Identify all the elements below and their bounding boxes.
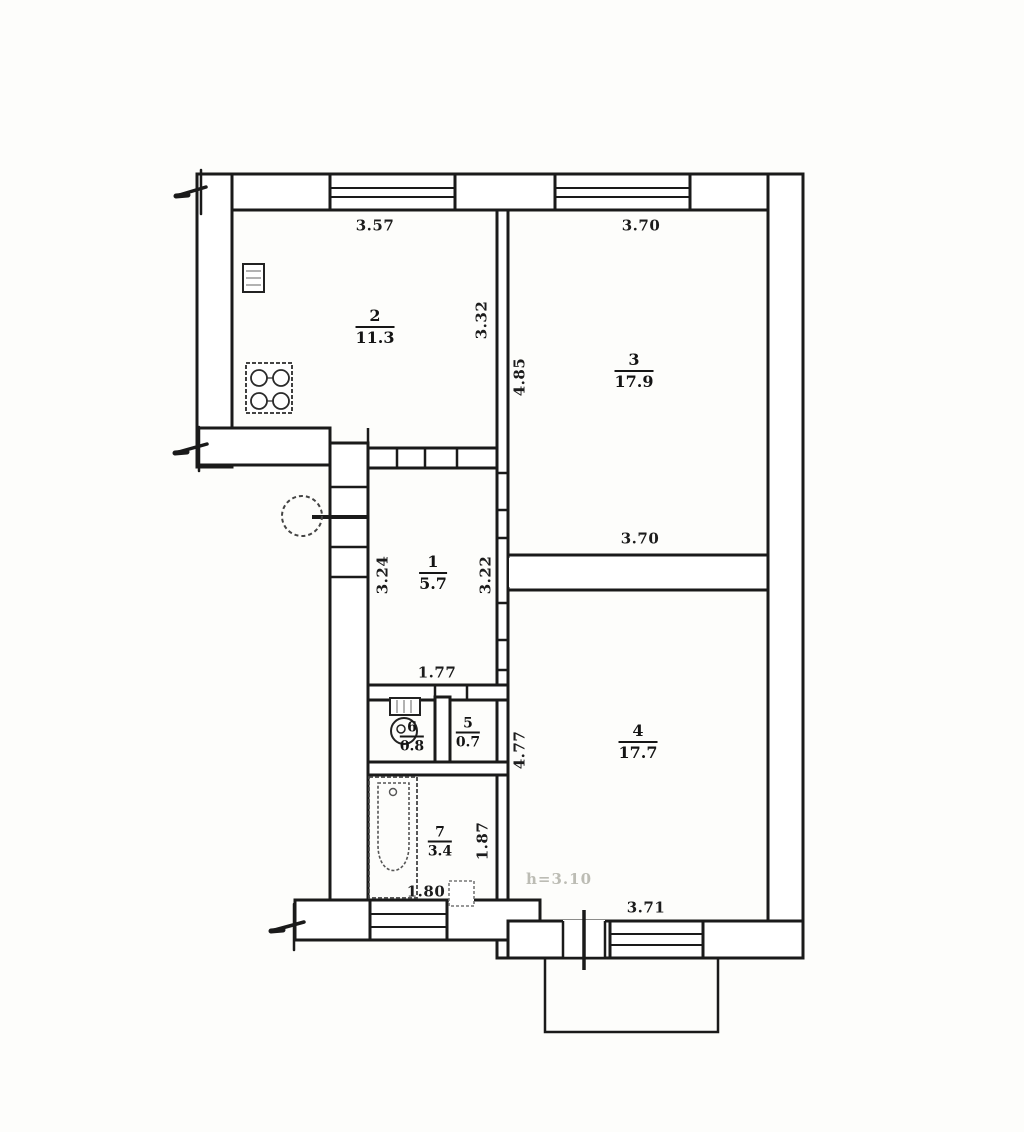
room-7-label: 7 3.4: [428, 826, 452, 859]
room-3-label: 3 17.9: [615, 352, 654, 390]
room-7-area: 3.4: [428, 843, 452, 859]
room-5-label: 5 0.7: [456, 717, 480, 750]
dim-room2-right: 3.32: [475, 301, 490, 340]
dim-room1-right: 3.22: [479, 556, 494, 595]
bath-top-wall: [368, 762, 508, 775]
sink-icon: [243, 264, 264, 292]
exterior-left-wall-upper: [197, 174, 232, 467]
bathtub-icon: [369, 777, 417, 898]
divider-junction-opening: [509, 558, 513, 587]
dim-room4-left: 4.77: [513, 731, 528, 770]
room-4-label: 4 17.7: [619, 723, 658, 761]
hall-left-wall: [330, 443, 368, 903]
wall-break-marks-group: [175, 170, 304, 950]
room-3-area: 17.9: [615, 372, 654, 390]
dim-room7-right: 1.87: [476, 822, 491, 861]
dim-room1-bottom: 1.77: [418, 666, 457, 681]
room-3-number: 3: [615, 352, 654, 372]
central-spine-wall: [497, 210, 508, 958]
room-2-label: 2 11.3: [356, 308, 395, 346]
dim-room7-bottom: 1.80: [407, 885, 446, 900]
floor-plan-page: 2 11.3 3 17.9 1 5.7 4 17.7 6 0.8 5 0.7 7…: [0, 0, 1024, 1132]
room3-room4-divider-wall: [508, 555, 768, 590]
wall-break-icon: [176, 170, 206, 214]
exterior-right-wall: [768, 174, 803, 958]
room-2-number: 2: [356, 308, 395, 328]
stove-icon: [246, 363, 292, 413]
room-5-area: 0.7: [456, 734, 480, 750]
ceiling-height-note: h=3.10: [526, 870, 592, 888]
dim-room3-bottom: 3.70: [621, 532, 660, 547]
dim-room3-top: 3.70: [622, 219, 661, 234]
dim-room1-left: 3.24: [376, 556, 391, 595]
wc-closet-divider-wall: [435, 697, 450, 762]
room-1-number: 1: [419, 554, 447, 574]
room-7-number: 7: [428, 826, 452, 843]
dim-room4-bottom: 3.71: [627, 901, 666, 916]
sink-icon: [449, 881, 474, 906]
room-5-number: 5: [456, 717, 480, 734]
exterior-top-wall: [197, 174, 803, 210]
room-4-area: 17.7: [619, 743, 658, 761]
walls-group: [197, 174, 803, 958]
room4-bottom-wall: [508, 921, 803, 958]
room-2-area: 11.3: [356, 328, 395, 346]
room-1-label: 1 5.7: [419, 554, 447, 592]
room-1-area: 5.7: [419, 574, 447, 592]
room-4-number: 4: [619, 723, 658, 743]
dim-room3-left: 4.85: [513, 358, 528, 397]
kitchen-bottom-left-wall: [197, 428, 330, 465]
hall-top-wall: [368, 448, 497, 468]
dim-room2-top: 3.57: [356, 219, 395, 234]
room-6-label: 6 0.8: [400, 721, 424, 754]
balcony-outline: [545, 958, 718, 1032]
exterior-bottom-left-wall: [295, 900, 540, 940]
floor-plan-drawing: [0, 0, 1024, 1132]
room-6-number: 6: [400, 721, 424, 738]
room-6-area: 0.8: [400, 738, 424, 754]
